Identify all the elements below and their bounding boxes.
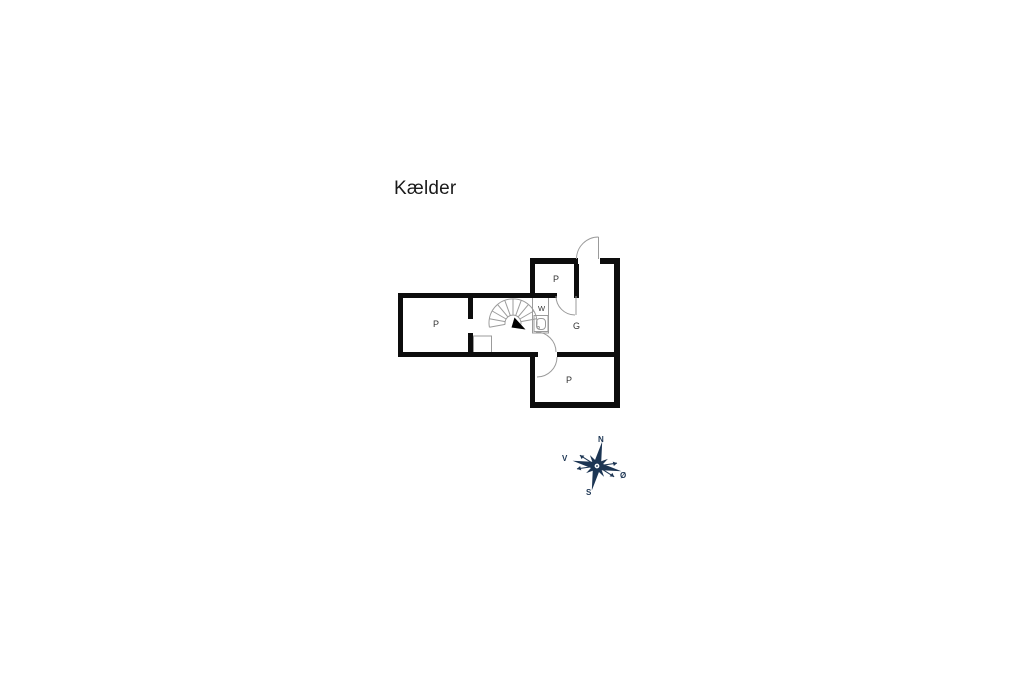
compass-rose (567, 436, 626, 495)
room-label-w: W (538, 304, 546, 314)
spiral-staircase (489, 299, 537, 330)
room-p-top-door (556, 296, 576, 315)
entry-door (577, 237, 599, 259)
entry-door-arc (577, 237, 599, 259)
room-label-p-bottom: P (566, 375, 573, 385)
compass-label-south: S (586, 488, 591, 497)
room-label-p-top: P (553, 274, 560, 284)
stair-direction-arrow (512, 318, 526, 330)
compass-label-north: N (598, 435, 604, 444)
g-to-p-bottom-door-arc (537, 357, 557, 377)
compass-label-west: V (562, 454, 567, 463)
room-label-g: G (573, 321, 581, 331)
room-label-p-left: P (433, 319, 440, 329)
room-p-top-door-arc (556, 296, 575, 315)
hall-to-g-door-arc (536, 332, 556, 352)
floor-plan-page: Kælder (0, 0, 1024, 682)
floor-plan-drawing (0, 0, 1024, 682)
compass-label-east: Ø (620, 471, 626, 480)
closet-outline (474, 336, 492, 352)
